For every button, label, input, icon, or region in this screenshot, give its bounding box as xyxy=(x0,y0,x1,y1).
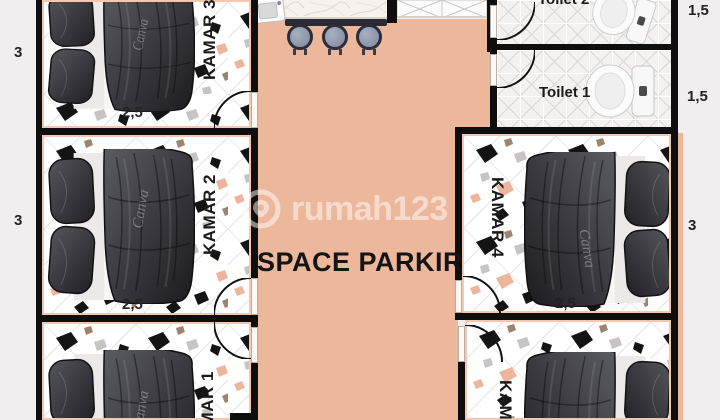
stool-leg xyxy=(339,49,342,55)
toilet-fixture xyxy=(584,60,658,122)
door-leaf xyxy=(251,327,258,363)
door-arc xyxy=(464,325,503,363)
wall-segment xyxy=(458,362,465,420)
floorplan-canvas: Canva xyxy=(0,0,720,420)
stool-leg xyxy=(293,49,296,55)
wall-segment xyxy=(455,127,672,134)
label-kamar-5: KAMAR 5 xyxy=(494,380,516,420)
wall-segment xyxy=(36,128,258,135)
wall-segment xyxy=(490,86,497,133)
dim-kamar2-width: 2,5 xyxy=(122,296,143,313)
bed-image xyxy=(47,350,195,420)
dim-kamar3-depth: 3 xyxy=(14,44,22,61)
stool-leg xyxy=(304,49,307,55)
label-toilet-2: Toilet 2 xyxy=(538,0,589,8)
door-leaf xyxy=(455,280,462,313)
wall-segment xyxy=(455,313,678,320)
label-kamar-3: KAMAR 3 xyxy=(199,0,221,80)
dim-kamar2-depth: 3 xyxy=(14,212,22,229)
door-arc xyxy=(462,276,501,314)
bed-image xyxy=(47,149,195,304)
label-kamar-4: KAMAR 4 xyxy=(486,177,508,257)
rumah123-watermark-text: rumah123 xyxy=(291,190,448,229)
door-leaf xyxy=(251,278,258,315)
stool-leg xyxy=(328,49,331,55)
wall-segment xyxy=(671,0,678,420)
dim-toilet1-depth: 1,5 xyxy=(687,88,708,105)
stool-leg xyxy=(373,49,376,55)
door-leaf xyxy=(251,92,258,128)
parking-label: SPACE PARKIR xyxy=(250,247,470,278)
dim-toilet2-depth: 1,5 xyxy=(688,2,709,19)
label-toilet-1: Toilet 1 xyxy=(539,84,590,101)
stool-leg xyxy=(362,49,365,55)
door-leaf xyxy=(490,54,497,86)
bar-stool xyxy=(322,24,348,50)
rumah123-watermark: rumah123 xyxy=(239,187,448,231)
wall-segment xyxy=(230,413,258,420)
door-arc xyxy=(497,2,535,40)
dim-kamar4-depth: 3 xyxy=(688,217,696,234)
dim-kamar3-width: 2,5 xyxy=(122,104,143,121)
exterior-accent-strip xyxy=(678,133,683,420)
bed-image xyxy=(524,152,671,307)
bar-stool xyxy=(356,24,382,50)
label-kamar-2: KAMAR 2 xyxy=(199,175,221,255)
label-kamar-1: KAMAR 1 xyxy=(197,372,219,420)
wall-segment xyxy=(36,0,42,420)
door-leaf xyxy=(490,5,497,38)
bed-image xyxy=(47,0,195,112)
wall-segment xyxy=(251,363,258,420)
wall-segment xyxy=(251,0,258,92)
door-arc xyxy=(214,321,252,359)
dim-kamar4-width: 2,5 xyxy=(555,295,576,312)
door-arc xyxy=(214,278,252,316)
bar-stool xyxy=(287,24,313,50)
door-arc xyxy=(214,91,252,129)
wall-segment xyxy=(387,0,397,23)
rumah123-logo-icon xyxy=(239,187,283,231)
bed-image xyxy=(524,352,671,420)
door-arc xyxy=(497,50,535,88)
entry-window xyxy=(397,0,487,18)
